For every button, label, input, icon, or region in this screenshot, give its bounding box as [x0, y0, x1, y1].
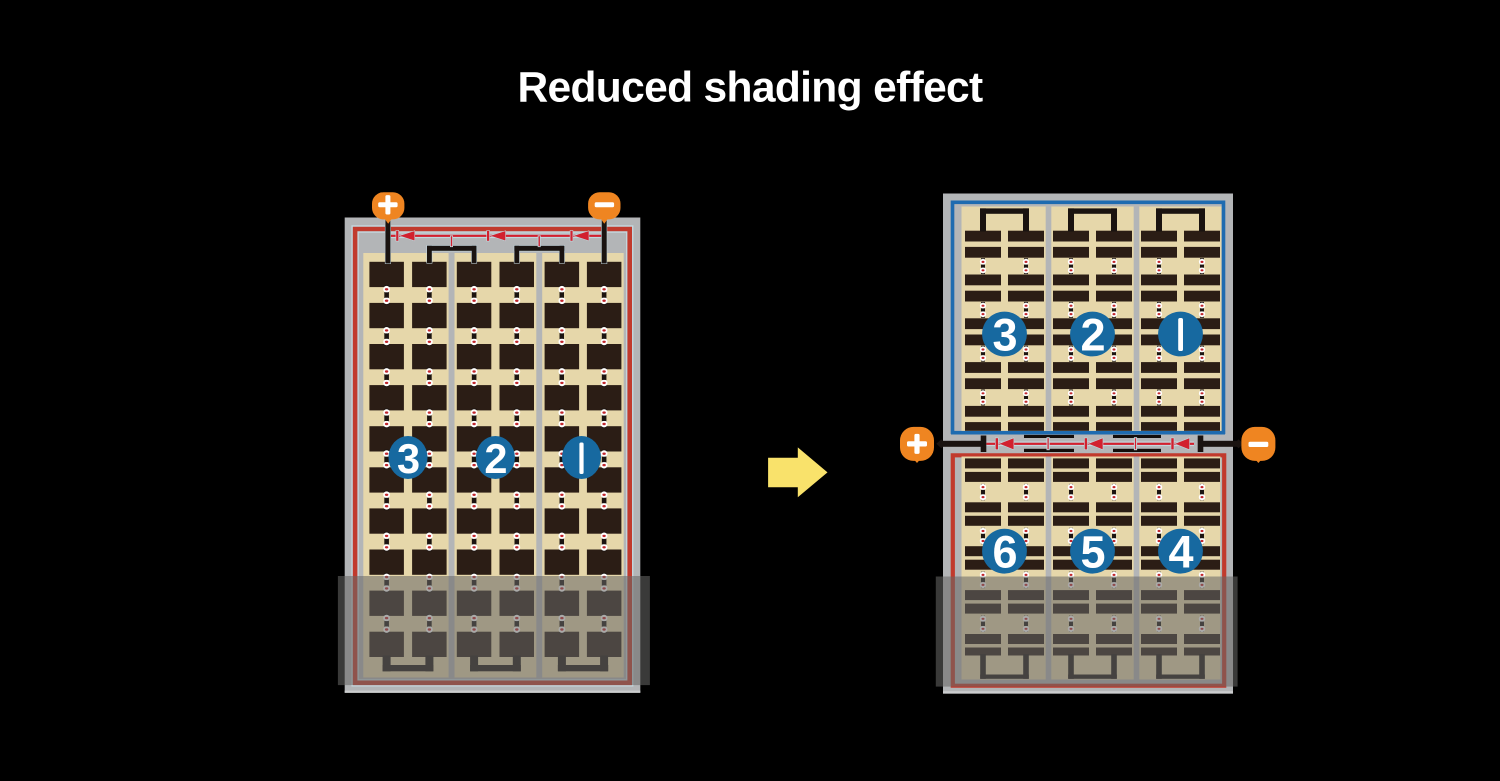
svg-text:4: 4 — [1168, 527, 1193, 578]
svg-text:2: 2 — [1080, 309, 1105, 360]
svg-text:Reduced shading effect: Reduced shading effect — [517, 65, 983, 112]
svg-text:5: 5 — [1080, 527, 1105, 578]
svg-text:2: 2 — [484, 435, 507, 482]
svg-text:3: 3 — [992, 309, 1017, 360]
svg-text:3: 3 — [397, 435, 420, 482]
svg-text:6: 6 — [992, 527, 1017, 578]
